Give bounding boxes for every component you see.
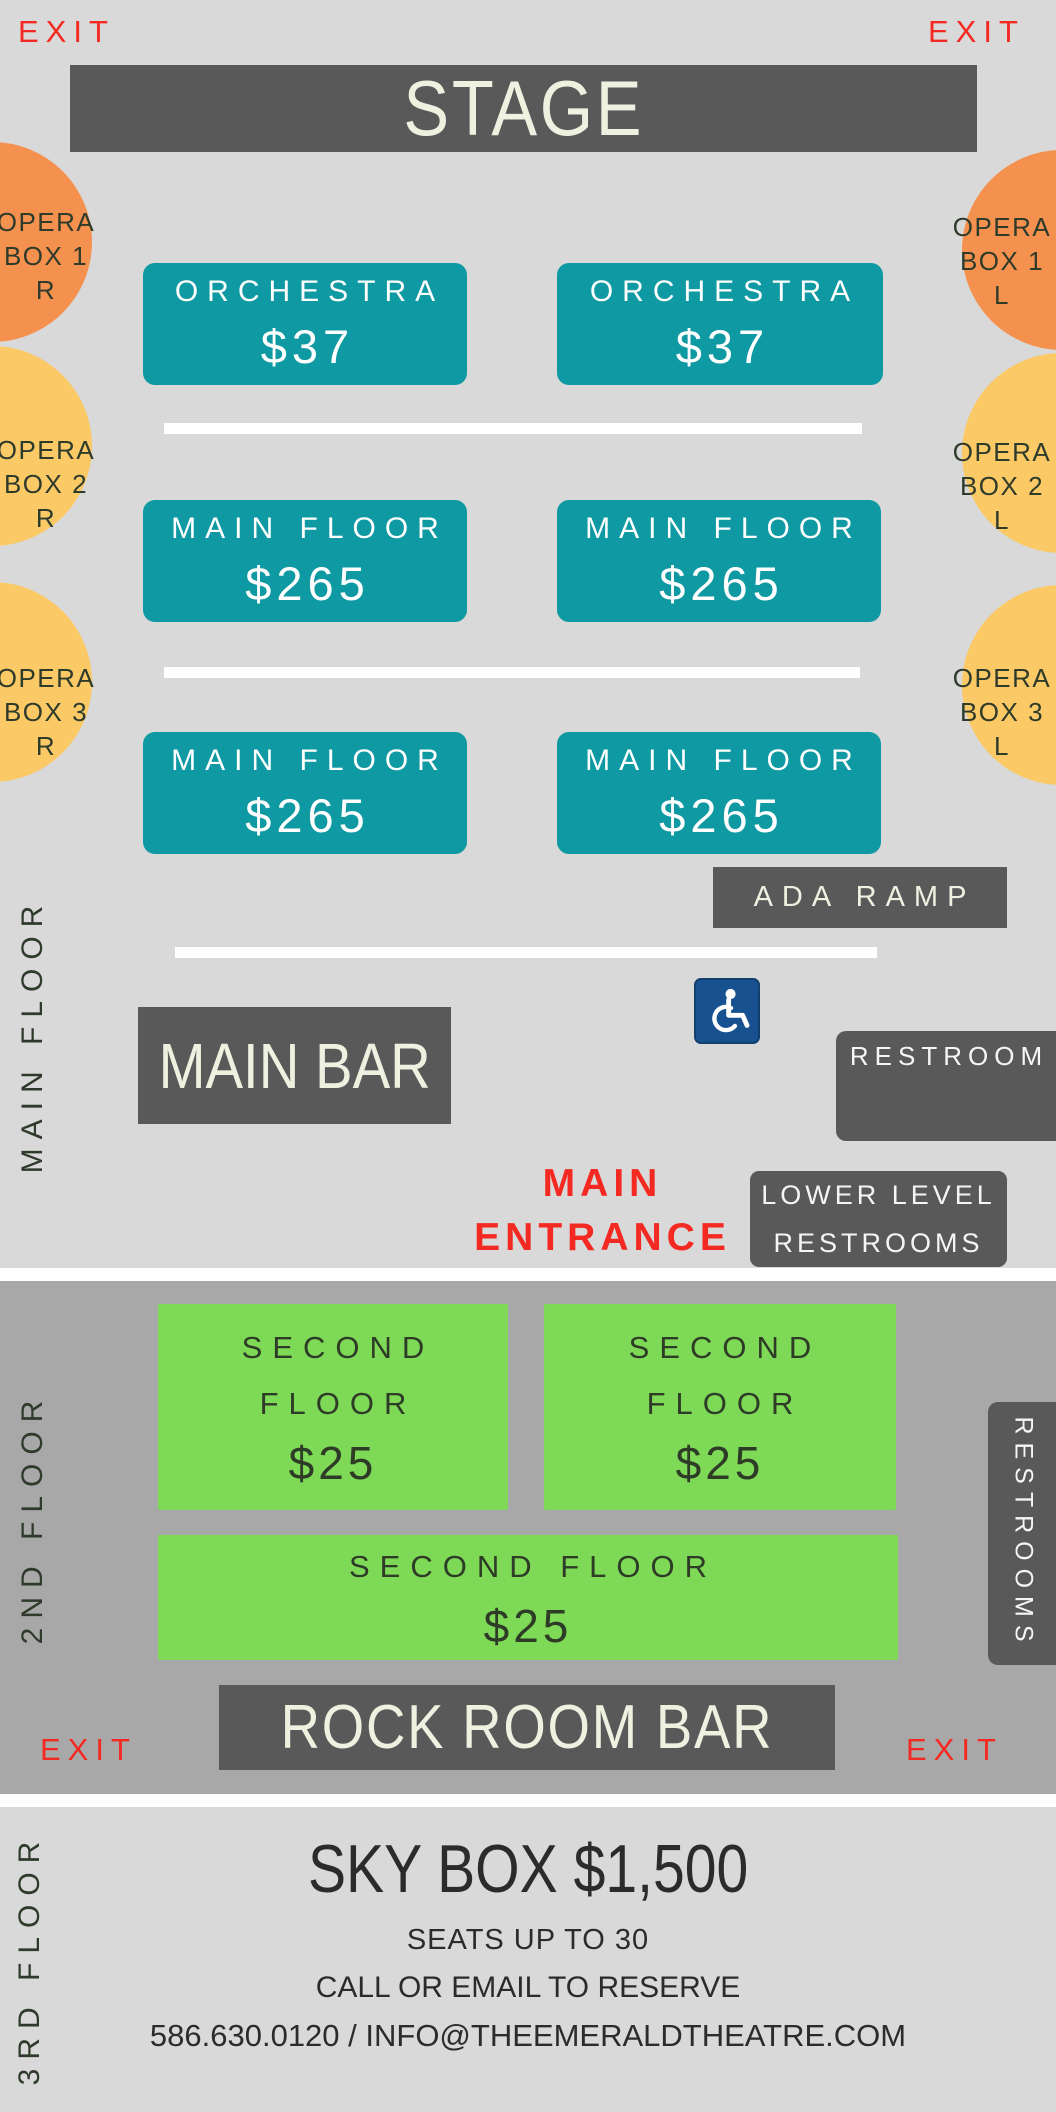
section-price: $265	[654, 556, 784, 611]
sky-box-reserve-line: CALL OR EMAIL TO RESERVE	[78, 1971, 978, 2005]
stage-label: STAGE	[387, 63, 661, 154]
restroom-box: RESTROOM	[836, 1031, 1056, 1141]
opera-box-1-left-label: OPERABOX 1L	[952, 210, 1052, 312]
opera-box-1-right-label: OPERABOX 1R	[0, 205, 96, 307]
aisle-line-1	[164, 423, 862, 434]
main-floor-section-row1-right: MAIN FLOOR $265	[557, 500, 881, 622]
section-price: $265	[240, 788, 370, 843]
main-floor-vertical-label: MAIN FLOOR	[16, 897, 50, 1174]
orchestra-section-left: ORCHESTRA $37	[143, 263, 467, 385]
sky-box-contact-line: 586.630.0120 / INFO@THEEMERALDTHEATRE.CO…	[58, 2018, 998, 2054]
restroom-label: RESTROOM	[836, 1041, 1056, 1072]
section-price: $25	[484, 1595, 573, 1657]
third-floor-vertical-label: 3RD FLOOR	[13, 1833, 47, 2086]
aisle-line-3	[175, 947, 877, 958]
main-bar-label: MAIN BAR	[140, 1029, 449, 1103]
exit-label-top-left: EXIT	[18, 14, 115, 50]
orchestra-section-right: ORCHESTRA $37	[557, 263, 883, 385]
second-floor-section-left: SECOND FLOOR $25	[158, 1304, 508, 1510]
section-label: MAIN FLOOR	[576, 512, 862, 546]
section-price: $37	[256, 319, 354, 374]
rock-room-bar-label: ROCK ROOM BAR	[247, 1692, 807, 1763]
exit-label-bottom-right: EXIT	[906, 1732, 1003, 1768]
section-price: $25	[289, 1432, 378, 1494]
ada-ramp: ADA RAMP	[713, 867, 1007, 928]
second-floor-section-right: SECOND FLOOR $25	[544, 1304, 896, 1510]
main-bar: MAIN BAR	[138, 1007, 451, 1124]
opera-box-2-left-label: OPERABOX 2L	[952, 435, 1052, 537]
lower-level-restrooms: LOWER LEVEL RESTROOMS	[750, 1171, 1007, 1267]
section-label: FLOOR	[250, 1376, 417, 1432]
main-entrance-label: MAIN ENTRANCE	[460, 1157, 745, 1265]
floor-divider-1	[0, 1268, 1056, 1281]
section-label: SECOND	[232, 1320, 435, 1376]
section-price: $37	[671, 319, 769, 374]
section-label: FLOOR	[637, 1376, 804, 1432]
second-floor-restrooms-label: RESTROOMS	[1009, 1416, 1038, 1649]
section-price: $265	[240, 556, 370, 611]
section-label: MAIN FLOOR	[162, 744, 448, 778]
section-price: $25	[676, 1432, 765, 1494]
section-label: MAIN FLOOR	[162, 512, 448, 546]
exit-label-top-right: EXIT	[928, 14, 1025, 50]
second-floor-vertical-label: 2ND FLOOR	[16, 1392, 50, 1645]
rock-room-bar: ROCK ROOM BAR	[219, 1685, 835, 1770]
opera-box-3-left-label: OPERABOX 3L	[952, 661, 1052, 763]
second-floor-section-wide: SECOND FLOOR $25	[158, 1535, 898, 1660]
wheelchair-icon	[694, 978, 760, 1044]
section-label: SECOND	[619, 1320, 822, 1376]
section-price: $265	[654, 788, 784, 843]
aisle-line-2	[164, 667, 860, 678]
opera-box-2-right-label: OPERABOX 2R	[0, 433, 96, 535]
sky-box-title: SKY BOX $1,500	[78, 1830, 978, 1908]
floor-divider-2	[0, 1794, 1056, 1807]
section-label: ORCHESTRA	[581, 275, 859, 309]
main-floor-section-row2-right: MAIN FLOOR $265	[557, 732, 881, 854]
section-label: ORCHESTRA	[166, 275, 444, 309]
main-floor-section-row2-left: MAIN FLOOR $265	[143, 732, 467, 854]
exit-label-bottom-left: EXIT	[40, 1732, 137, 1768]
opera-box-3-right-label: OPERABOX 3R	[0, 661, 96, 763]
venue-seating-map: EXIT EXIT STAGE OPERABOX 1R OPERABOX 2R …	[0, 0, 1056, 2112]
section-label: MAIN FLOOR	[576, 744, 862, 778]
stage: STAGE	[70, 65, 977, 152]
ada-ramp-label: ADA RAMP	[745, 881, 976, 914]
sky-box-seats-line: SEATS UP TO 30	[78, 1924, 978, 1957]
section-label: SECOND FLOOR	[339, 1539, 717, 1595]
main-floor-section-row1-left: MAIN FLOOR $265	[143, 500, 467, 622]
